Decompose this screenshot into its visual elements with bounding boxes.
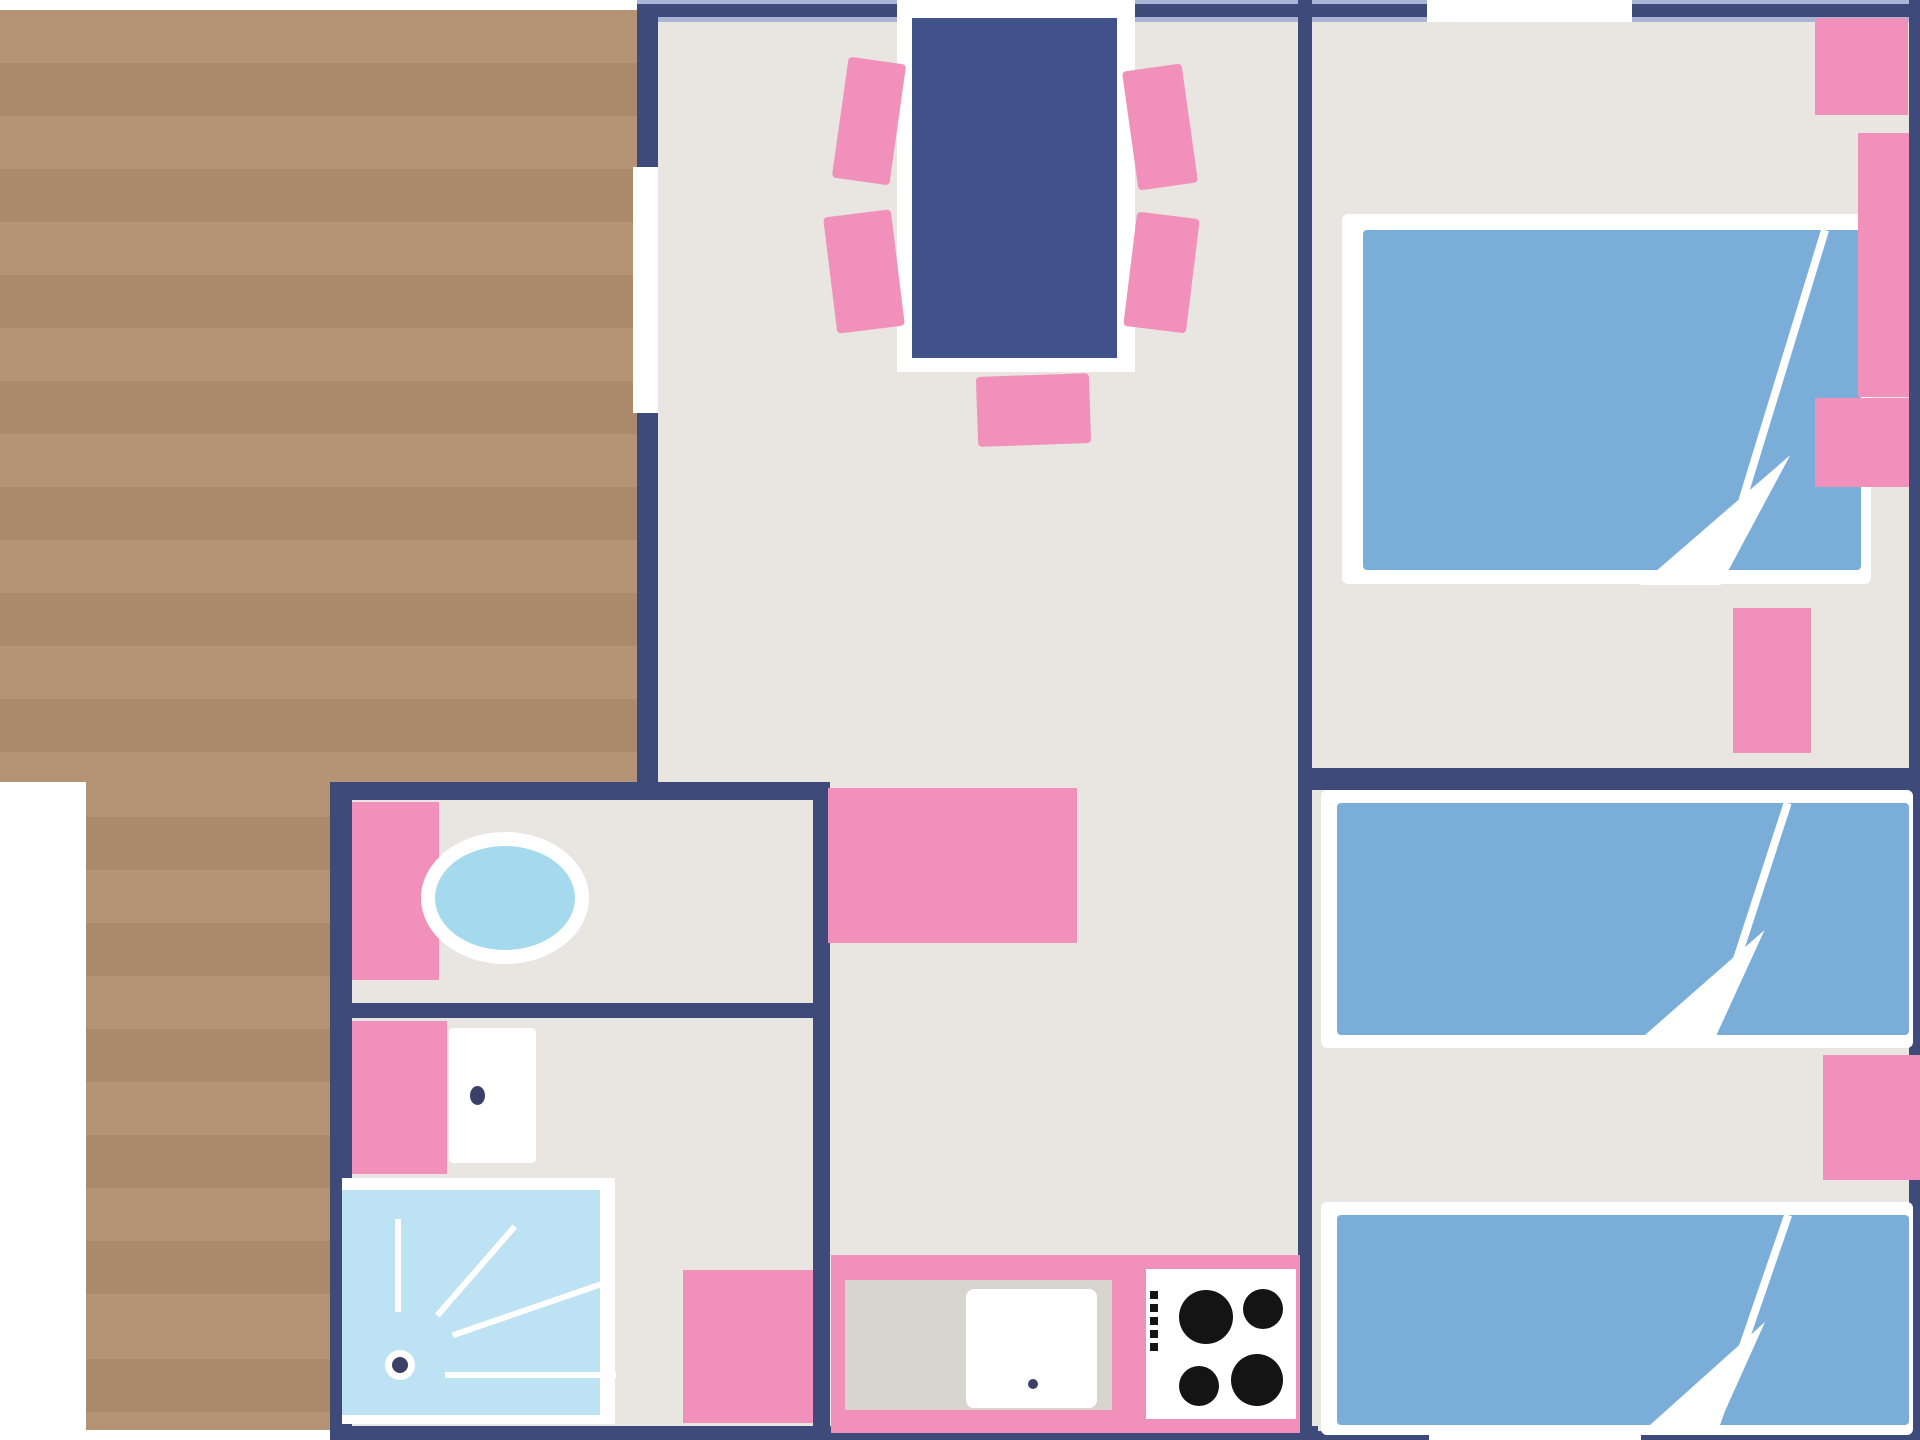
terrace-deck-upper <box>0 10 637 782</box>
hob-burner-top-right <box>1243 1289 1283 1329</box>
nightstand <box>1823 1055 1920 1180</box>
wardrobe-block-4 <box>1733 608 1811 753</box>
bedroom-double-window-opening <box>1427 0 1632 22</box>
storage-unit <box>683 1270 813 1423</box>
bathroom-top-wall <box>330 782 828 800</box>
double-bed <box>1363 230 1861 570</box>
wardrobe-block-2 <box>1858 133 1909 397</box>
kitchen-sink <box>966 1289 1097 1408</box>
kitchen-sink-drain <box>1028 1379 1038 1389</box>
terrace-deck-lower <box>86 782 330 1430</box>
top-wall-mid <box>1130 4 1427 17</box>
shower-head-dot <box>392 1357 408 1373</box>
bedrooms-left-wall <box>1298 0 1312 1440</box>
floor-plan-canvas <box>0 0 1920 1440</box>
bedrooms-divider-wall <box>1312 768 1920 790</box>
single-bed-1 <box>1337 803 1909 1035</box>
washbasin-wc-divider-wall <box>352 1003 813 1018</box>
dining-chair-2 <box>823 209 905 333</box>
toilet <box>449 1028 536 1163</box>
hob-burner-bottom-left <box>1179 1366 1219 1406</box>
dining-chair-5 <box>976 373 1091 447</box>
bench-sofa <box>828 788 1077 943</box>
wc-wall-strip <box>352 1021 447 1174</box>
top-wall-right <box>1632 4 1920 17</box>
hob-burner-top-left <box>1179 1290 1233 1344</box>
hob-knob-4 <box>1150 1330 1158 1338</box>
deck-top-margin <box>0 0 637 10</box>
washbasin-bowl <box>435 846 575 950</box>
living-left-wall-lower <box>637 413 658 782</box>
shower-tray <box>342 1190 600 1415</box>
hob-knob-5 <box>1150 1343 1158 1351</box>
top-wall-left <box>637 4 914 17</box>
dining-table <box>912 18 1117 358</box>
hob-knob-2 <box>1150 1304 1158 1312</box>
living-left-wall-upper <box>637 10 658 167</box>
wardrobe-block-3 <box>1815 398 1909 487</box>
hob-burner-bottom-right <box>1231 1354 1283 1406</box>
single-bed-2 <box>1337 1215 1909 1425</box>
terrace-door-opening <box>633 167 658 413</box>
hob-knob-3 <box>1150 1317 1158 1325</box>
shower-spray-ray-vertical <box>395 1219 401 1312</box>
wardrobe-block-1 <box>1815 18 1908 115</box>
shower-spray-ray-horizontal <box>445 1372 616 1378</box>
toilet-flush-dot <box>470 1086 485 1105</box>
hob-knob-1 <box>1150 1291 1158 1299</box>
